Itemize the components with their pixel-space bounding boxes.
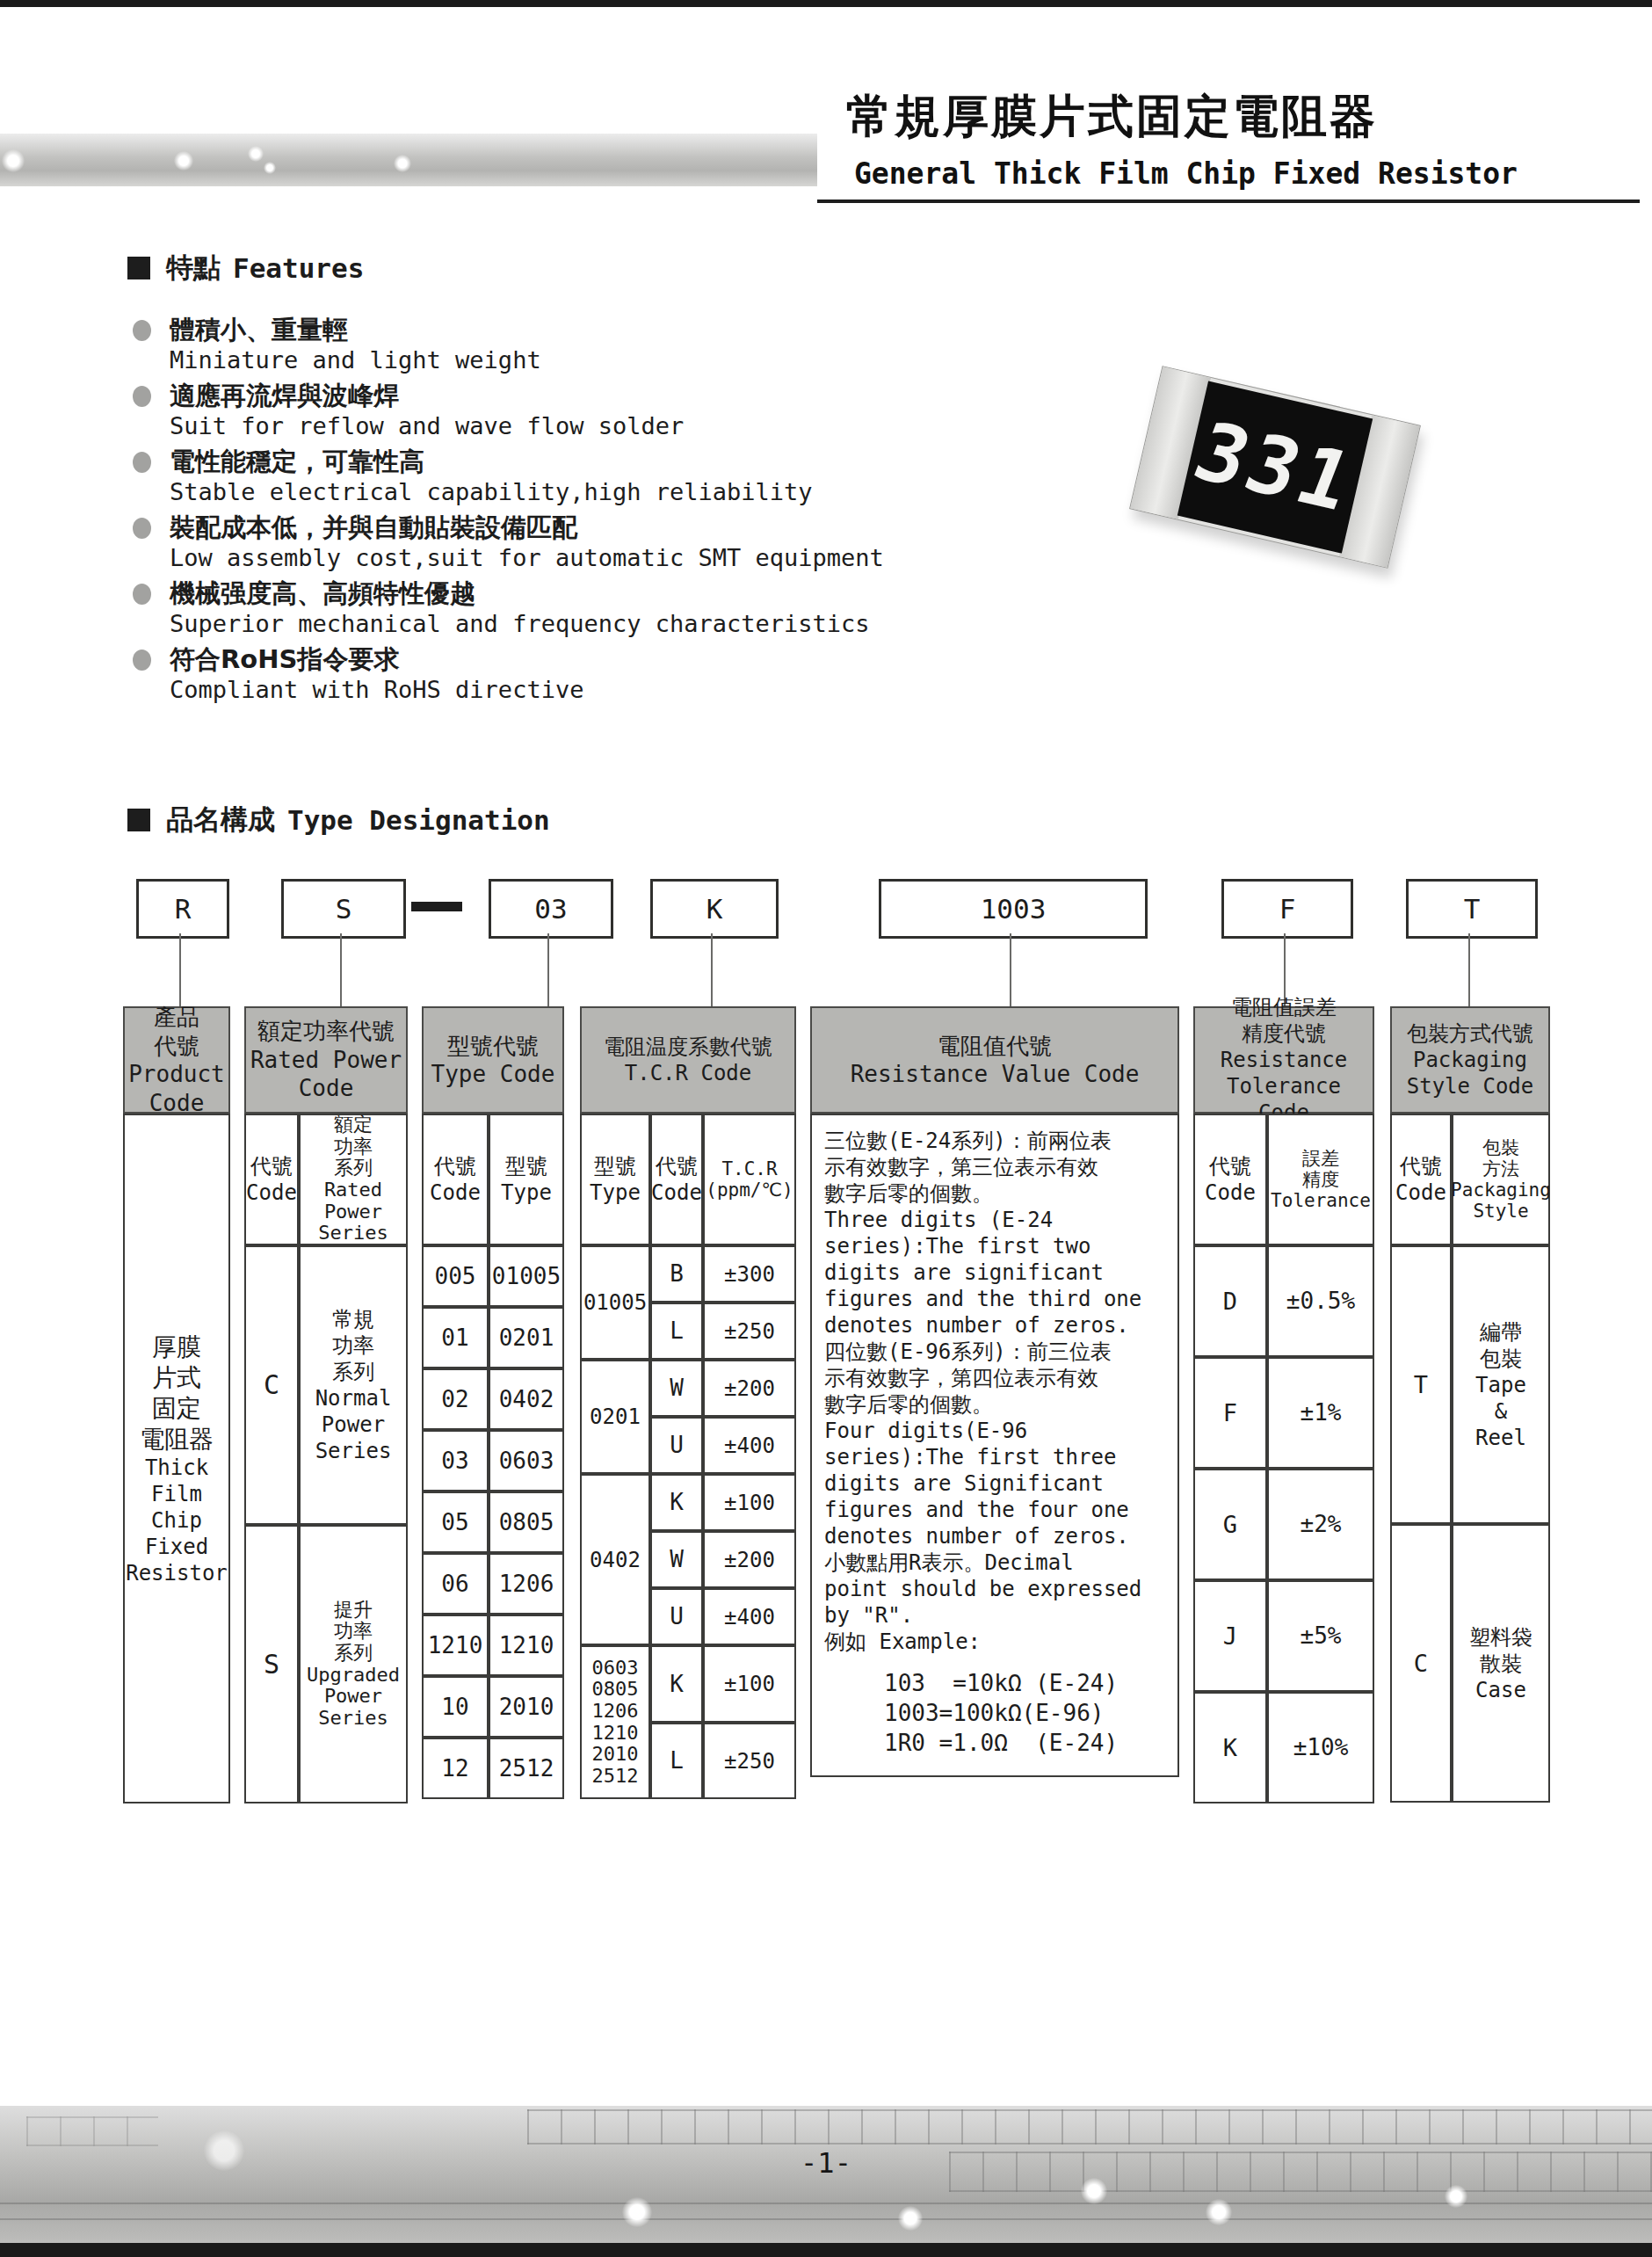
col-header-resistance-value: 電阻值代號 Resistance Value Code [810,1006,1179,1114]
feature-item-zh: 體積小、重量輕 [170,313,348,348]
designation-box-packaging: T [1406,879,1538,939]
feature-item-en: Superior mechanical and frequency charac… [170,610,870,637]
cell-type-code: 1210 [422,1615,489,1676]
sparkle-dot [248,146,264,162]
feature-item-en: Miniature and light weight [170,346,541,374]
resistance-description: 三位數(E-24系列)：前兩位表 示有效數字，第三位表示有效 數字后零的個數。 … [824,1128,1141,1655]
feature-item-zh: 機械强度高、高頻特性優越 [170,577,475,612]
cell-type-code: 005 [422,1245,489,1307]
type-designation-heading: 品名構成 Type Designation [127,802,550,838]
chip-resistor-photo: 331 [1129,366,1421,569]
cell-tcr-code: K [650,1474,703,1531]
product-body-en: Thick Film Chip Fixed Resistor [126,1455,228,1586]
subheader-power-code: 代號 Code [244,1114,299,1245]
page-title-chinese: 常規厚膜片式固定電阻器 [846,86,1378,148]
cell-type-size: 0201 [489,1307,564,1368]
cell-tcr-value: ±100 [703,1645,796,1723]
designation-box-resistance: 1003 [879,879,1148,939]
cell-type-code: 03 [422,1430,489,1491]
sparkle-dot [1206,2199,1232,2225]
cell-type-code: 12 [422,1738,489,1799]
section-square-icon [127,809,150,831]
cell-tcr-value: ±200 [703,1531,796,1588]
subheader-type-type: 型號 Type [489,1114,564,1245]
connector-line [1468,933,1470,1007]
cell-packaging-code: C [1390,1524,1452,1803]
footer-squares-decoration [26,2116,158,2146]
cell-tcr-code: W [650,1531,703,1588]
cell-tcr-value: ±200 [703,1360,796,1417]
feature-item-en: Suit for reflow and wave flow solder [170,412,684,439]
designation-box-product: R [136,879,229,939]
cell-tolerance-value: ±1% [1267,1357,1374,1469]
bullet-icon [133,650,151,671]
cell-tolerance-value: ±10% [1267,1692,1374,1803]
cell-tcr-value: ±300 [703,1245,796,1303]
cell-tcr-code: U [650,1588,703,1645]
feature-item-en: Stable electrical capability,high reliab… [170,478,813,505]
designation-dash [411,902,462,911]
cell-type-size: 2010 [489,1676,564,1738]
cell-tcr-group: 0603 0805 1206 1210 2010 2512 [580,1645,650,1799]
features-heading-en: Features [233,252,364,284]
title-underline [817,200,1640,203]
cell-tcr-code: B [650,1245,703,1303]
designation-heading-en: Type Designation [287,804,550,836]
page-title-english: General Thick Film Chip Fixed Resistor [854,156,1518,191]
cell-tcr-code: K [650,1645,703,1723]
cell-packaging-code: T [1390,1245,1452,1524]
footer-stripe [0,2203,1652,2204]
cell-tcr-value: ±250 [703,1303,796,1360]
col-header-tcr: 電阻温度系數代號 T.C.R Code [580,1006,796,1114]
col-header-tolerance: 電阻值誤差 精度代號 Resistance Tolerance Code [1193,1006,1374,1114]
cell-power-series: 提升 功率 系列 Upgraded Power Series [299,1525,408,1803]
cell-type-code: 02 [422,1368,489,1430]
designation-box-tolerance: F [1221,879,1353,939]
cell-packaging-style: 編帶 包裝 Tape & Reel [1452,1245,1550,1524]
top-border-bar [0,0,1652,7]
bullet-icon [133,518,151,539]
col-header-type-code: 型號代號 Type Code [422,1006,564,1114]
connector-line [711,933,713,1007]
cell-type-size: 0805 [489,1491,564,1553]
bullet-icon [133,452,151,473]
product-body-zh: 厚膜 片式 固定 電阻器 [140,1332,214,1455]
col-header-rated-power: 額定功率代號 Rated Power Code [244,1006,408,1114]
feature-item-en: Compliant with RoHS directive [170,676,583,703]
cell-packaging-style: 塑料袋 散裝 Case [1452,1524,1550,1803]
cell-tcr-value: ±100 [703,1474,796,1531]
cell-tcr-value: ±400 [703,1588,796,1645]
connector-line [340,933,342,1007]
page-number: -1- [0,2146,1652,2180]
cell-type-size: 0402 [489,1368,564,1430]
cell-tcr-code: W [650,1360,703,1417]
cell-tolerance-value: ±0.5% [1267,1245,1374,1357]
cell-tcr-code: U [650,1417,703,1474]
feature-item-zh: 電性能穩定，可靠性高 [170,445,424,480]
sparkle-dot [898,2206,923,2231]
cell-tcr-value: ±250 [703,1723,796,1799]
bottom-border-bar [0,2243,1652,2257]
cell-type-size: 01005 [489,1245,564,1307]
designation-box-power: S [281,879,406,939]
bullet-icon [133,386,151,407]
connector-line [1010,933,1011,1007]
cell-tcr-code: L [650,1303,703,1360]
cell-type-size: 1206 [489,1553,564,1615]
cell-tcr-group: 01005 [580,1245,650,1360]
sparkle-dot [264,162,276,174]
cell-resistance-body: 三位數(E-24系列)：前兩位表 示有效數字，第三位表示有效 數字后零的個數。 … [810,1114,1179,1777]
cell-tcr-group: 0402 [580,1474,650,1645]
cell-tolerance-value: ±2% [1267,1469,1374,1580]
col-header-packaging: 包裝方式代號 Packaging Style Code [1390,1006,1550,1114]
subheader-tolerance-code: 代號 Code [1193,1114,1267,1245]
bullet-icon [133,320,151,341]
subheader-tcr-code: 代號 Code [650,1114,703,1245]
bullet-icon [133,584,151,605]
cell-tolerance-value: ±5% [1267,1580,1374,1692]
col-header-product-code: 產品 代號 Product Code [123,1006,230,1114]
subheader-packaging-style: 包裝 方法 Packaging Style [1452,1114,1550,1245]
features-heading-zh: 特點 [166,250,221,287]
footer-stripe [0,2218,1652,2220]
cell-type-size: 2512 [489,1738,564,1799]
cell-tolerance-code: D [1193,1245,1267,1357]
features-heading: 特點 Features [127,250,364,287]
sparkle-dot [622,2197,652,2227]
subheader-packaging-code: 代號 Code [1390,1114,1452,1245]
subheader-tcr-value: T.C.R (ppm/℃) [703,1114,796,1245]
sparkle-dot [1445,2185,1467,2208]
sparkle-dot [394,155,411,172]
subheader-type-code: 代號 Code [422,1114,489,1245]
cell-tolerance-code: F [1193,1357,1267,1469]
cell-type-code: 01 [422,1307,489,1368]
cell-tolerance-code: G [1193,1469,1267,1580]
resistance-examples: 103 =10kΩ (E-24) 1003=100kΩ(E-96) 1R0 =1… [884,1669,1118,1758]
cell-type-code: 05 [422,1491,489,1553]
designation-heading-zh: 品名構成 [166,802,275,838]
cell-type-code: 10 [422,1676,489,1738]
feature-item-zh: 適應再流焊與波峰焊 [170,379,399,414]
cell-tcr-value: ±400 [703,1417,796,1474]
datasheet-page: 常規厚膜片式固定電阻器 General Thick Film Chip Fixe… [0,0,1652,2257]
cell-power-series: 常規 功率 系列 Normal Power Series [299,1245,408,1525]
cell-tolerance-code: J [1193,1580,1267,1692]
footer-squares-decoration [527,2109,1652,2145]
chip-marking: 331 [1182,405,1368,529]
sparkle-dot [174,151,193,171]
connector-line [547,933,549,1007]
sparkle-dot [1081,2178,1107,2204]
subheader-tolerance-value: 誤差 精度 Tolerance [1267,1114,1374,1245]
cell-power-code: C [244,1245,299,1525]
cell-product-body: 厚膜 片式 固定 電阻器 Thick Film Chip Fixed Resis… [123,1114,230,1803]
cell-tolerance-code: K [1193,1692,1267,1803]
cell-power-code: S [244,1525,299,1803]
feature-item-zh: 符合RoHS指令要求 [170,642,399,678]
connector-line [179,933,181,1007]
cell-type-size: 0603 [489,1430,564,1491]
designation-box-type: 03 [489,879,613,939]
subheader-power-series: 額定 功率 系列 Rated Power Series [299,1114,408,1245]
section-square-icon [127,257,150,279]
sparkle-dot [2,149,25,172]
subheader-tcr-type: 型號 Type [580,1114,650,1245]
chip-body: 331 [1177,381,1373,553]
cell-type-size: 1210 [489,1615,564,1676]
feature-item-zh: 裝配成本低，并與自動貼裝設備匹配 [170,511,577,546]
cell-tcr-code: L [650,1723,703,1799]
designation-box-tcr: K [650,879,779,939]
cell-tcr-group: 0201 [580,1360,650,1474]
cell-type-code: 06 [422,1553,489,1615]
feature-item-en: Low assembly cost,suit for automatic SMT… [170,544,884,571]
